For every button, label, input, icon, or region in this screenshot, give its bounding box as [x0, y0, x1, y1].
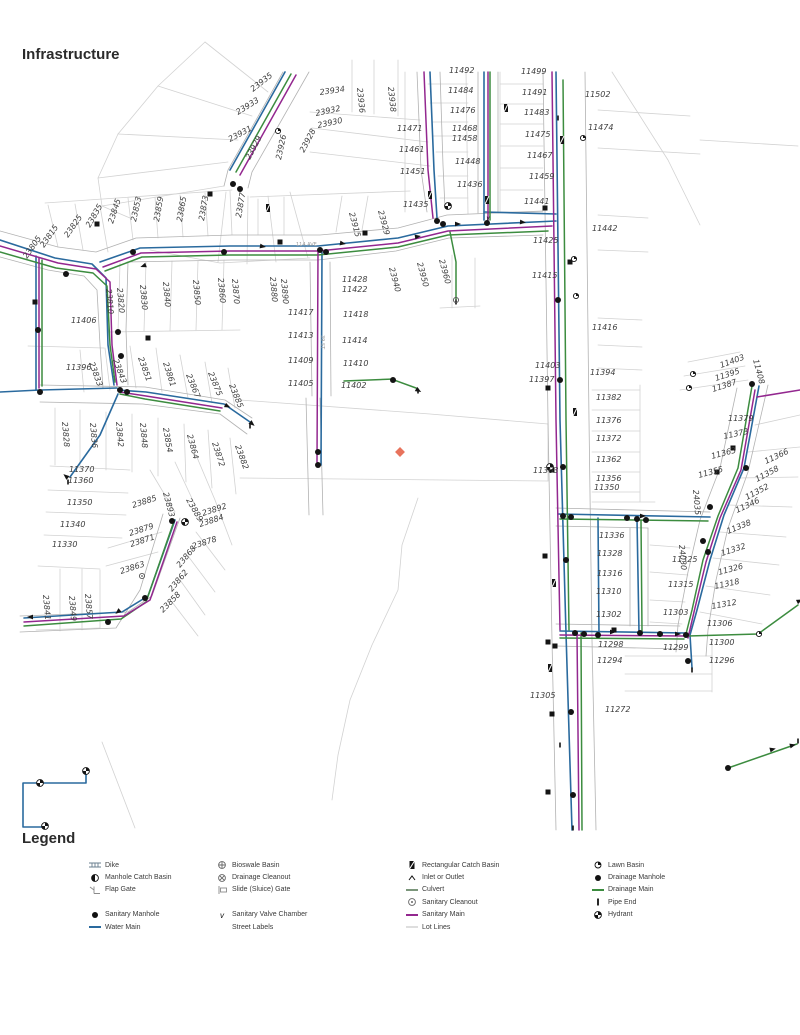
pipe-end-icon — [417, 389, 419, 394]
lot-line — [184, 424, 186, 482]
lawn-basin-icon — [591, 860, 605, 870]
manhole-icon — [37, 389, 43, 395]
lot-label: 23880 — [268, 276, 279, 302]
lot-label: 23842 — [114, 421, 125, 447]
lot-label: 11425 — [533, 236, 558, 245]
manhole-icon — [700, 538, 706, 544]
lot-label: 11418 — [343, 310, 368, 319]
catch-basin-icon — [546, 386, 551, 391]
lot-line — [598, 318, 642, 320]
road-edge-line — [556, 624, 680, 626]
lot-label: 11315 — [668, 580, 693, 589]
lot-label: 11302 — [596, 610, 621, 619]
catch-basin-icon — [543, 206, 548, 211]
lot-label: 23930 — [317, 116, 344, 130]
legend-item-label: Rectangular Catch Basin — [422, 862, 499, 869]
legend-item-lot-lines: Lot Lines — [405, 921, 591, 933]
manhole-icon — [221, 249, 227, 255]
manhole-icon — [705, 549, 711, 555]
lawn-basin-icon — [583, 135, 586, 138]
bioswale-basin-icon — [215, 860, 229, 870]
legend-item-sanitary-cleanout: Sanitary Cleanout — [405, 896, 591, 908]
water-main-icon — [88, 922, 102, 932]
manhole-icon — [440, 221, 446, 227]
culvert-icon — [405, 885, 419, 895]
lot-line — [650, 572, 688, 575]
cleanout-icon — [141, 575, 143, 577]
lot-label: 23840 — [161, 281, 172, 307]
lot-label: 11360 — [68, 476, 93, 485]
legend-item-label: Sanitary Valve Chamber — [232, 911, 307, 918]
catch-basin-icon — [546, 640, 551, 645]
drainage-main-line — [394, 380, 416, 388]
hydrant-icon — [591, 910, 605, 920]
manhole-icon — [637, 630, 643, 636]
lot-label: 23885 — [227, 382, 245, 409]
legend-item-label: Culvert — [422, 886, 444, 893]
legend-panel: Legend DikeManhole Catch BasinFlap GateS… — [22, 830, 782, 933]
lot-line — [748, 447, 800, 452]
legend-item-label: Lawn Basin — [608, 862, 644, 869]
lot-label: 11417 — [288, 308, 314, 317]
lot-label: 23868 — [175, 544, 198, 569]
lot-label: 23853 — [129, 196, 143, 223]
manhole-icon — [624, 515, 630, 521]
manhole-icon — [117, 387, 123, 393]
lot-label: 11326 — [717, 562, 744, 577]
catch-basin-icon — [363, 231, 368, 236]
manhole-icon — [657, 631, 663, 637]
road-edge-line — [556, 508, 710, 512]
manhole-icon — [315, 449, 321, 455]
manhole-icon — [581, 631, 587, 637]
legend-item-slide-sluice-gate: Slide (Sluice) Gate — [215, 884, 405, 896]
manhole-icon — [707, 504, 713, 510]
legend-item-drainage-main: Drainage Main — [591, 884, 751, 896]
lot-label: 11363 — [533, 466, 558, 475]
manhole-icon — [130, 249, 136, 255]
lot-label: 23848 — [138, 422, 149, 448]
water-main-line — [321, 252, 322, 465]
lot-label: 11366 — [763, 447, 790, 466]
lot-label: 11355 — [697, 465, 724, 480]
legend-item-label: Manhole Catch Basin — [105, 874, 172, 881]
lot-label: 11376 — [596, 416, 621, 425]
manhole-icon — [230, 181, 236, 187]
water-main-line — [560, 631, 686, 633]
lot-line — [240, 400, 548, 424]
lot-line — [240, 478, 548, 481]
lot-line — [247, 196, 248, 264]
lot-label: 23864 — [185, 433, 200, 460]
lot-label: 11475 — [525, 130, 550, 139]
selected-location-marker — [395, 447, 405, 457]
drainage-main-icon — [591, 885, 605, 895]
pipe-end-icon — [591, 897, 605, 907]
lot-label: 11410 — [343, 359, 368, 368]
legend-item-drainage-cleanout: Drainage Cleanout — [215, 871, 405, 883]
lot-label: 11468 — [452, 124, 477, 133]
lot-label: 11394 — [590, 368, 615, 377]
lot-label: 11405 — [288, 379, 313, 388]
catch-basin-icon — [550, 712, 555, 717]
legend-item-sanitary-manhole: Sanitary Manhole — [88, 909, 215, 921]
catch-basin-icon — [33, 300, 38, 305]
manhole-icon — [595, 632, 601, 638]
lot-label: 23950 — [415, 261, 430, 288]
lot-label: 23828 — [60, 421, 71, 447]
legend-item-street-labels: Street Labels — [215, 921, 405, 933]
none-icon — [215, 922, 229, 932]
manhole-icon — [557, 377, 563, 383]
legend-item-label: Drainage Manhole — [608, 874, 665, 881]
legend-item-label: Water Main — [105, 924, 141, 931]
lot-label: 11358 — [754, 464, 781, 484]
lot-line — [290, 192, 308, 258]
lot-label: 23934 — [319, 85, 345, 97]
road-edge-line — [556, 526, 648, 528]
lot-line — [98, 162, 228, 178]
lot-line — [102, 742, 135, 828]
manhole-icon — [115, 329, 121, 335]
lot-label: 23926 — [274, 134, 288, 161]
manhole-icon — [434, 218, 440, 224]
lot-label: 11272 — [605, 705, 630, 714]
lot-label: 11379 — [728, 414, 753, 423]
water-main-line — [637, 519, 639, 632]
manhole-icon — [142, 595, 148, 601]
lot-label: 11483 — [524, 108, 549, 117]
lot-label: 23865 — [175, 196, 188, 223]
lot-label: 23845 — [106, 198, 122, 225]
manhole-icon — [634, 516, 640, 522]
manhole-icon — [743, 465, 749, 471]
lot-label: 11362 — [596, 455, 621, 464]
lot-label: 23859 — [152, 196, 165, 223]
lot-line — [118, 134, 238, 140]
road-edge-line — [126, 262, 128, 385]
lot-label: 11402 — [341, 381, 366, 390]
manhole-icon — [124, 389, 130, 395]
lot-label: 23929 — [376, 209, 391, 236]
legend-item-label: Sanitary Manhole — [105, 911, 159, 918]
manhole-icon — [555, 297, 561, 303]
lot-label: 11428 — [342, 275, 367, 284]
legend-item-label: Street Labels — [232, 924, 273, 931]
catch-basin-icon — [543, 554, 548, 559]
road-edge-line — [127, 235, 543, 262]
manhole-icon — [35, 327, 41, 333]
lot-label: 11310 — [596, 587, 621, 596]
drainage-manhole-icon — [591, 873, 605, 883]
road-edge-line — [306, 398, 309, 515]
legend-item-label: Hydrant — [608, 911, 633, 918]
drainage-cleanout-icon — [215, 873, 229, 883]
lot-line — [108, 330, 240, 332]
legend-item-label: Drainage Cleanout — [232, 874, 290, 881]
manhole-icon — [568, 709, 574, 715]
lot-label: 11435 — [403, 200, 428, 209]
manhole-icon — [390, 377, 396, 383]
lot-line — [310, 152, 430, 166]
manhole-icon — [572, 630, 578, 636]
legend-item-label: Drainage Main — [608, 886, 654, 893]
lot-label: 11350 — [594, 483, 619, 492]
sanitary-cleanout-icon — [405, 897, 419, 907]
lot-label: 11451 — [400, 167, 425, 176]
water-main-line — [558, 514, 710, 517]
street-label: 114 AVE — [296, 242, 317, 248]
legend-item-label: Lot Lines — [422, 924, 450, 931]
lot-label: 11499 — [521, 67, 546, 76]
lot-label: 11461 — [399, 145, 424, 154]
legend-item-dike: Dike — [88, 859, 215, 871]
lot-label: 11370 — [69, 465, 94, 474]
lot-label: 23870 — [230, 278, 241, 304]
catch-basin-icon — [208, 192, 213, 197]
lot-label: 23882 — [233, 444, 250, 471]
legend-item-sanitary-main: Sanitary Main — [405, 909, 591, 921]
lot-label: 23867 — [184, 372, 202, 400]
lot-label: 11363 — [710, 446, 737, 461]
sanitary-main-line — [317, 252, 318, 462]
lot-line — [598, 345, 642, 347]
legend-item-pipe-end: Pipe End — [591, 896, 751, 908]
lot-line — [196, 455, 215, 500]
manhole-catch-basin-icon — [88, 873, 102, 883]
cleanout-icon — [455, 299, 457, 301]
lot-label: 11296 — [709, 656, 734, 665]
lot-label: 11340 — [60, 520, 85, 529]
legend-item-rectangular-catch-basin: Rectangular Catch Basin — [405, 859, 591, 871]
lot-label: 23933 — [234, 96, 260, 117]
lot-label: 11332 — [720, 541, 747, 557]
legend-item-label: Flap Gate — [105, 886, 136, 893]
lot-label: 11459 — [529, 172, 554, 181]
pipe-end-icon — [557, 116, 559, 121]
lot-label: 23872 — [210, 441, 226, 468]
lot-label: 11328 — [597, 549, 622, 558]
slide-gate-icon — [215, 885, 229, 895]
lot-label: 11312 — [711, 598, 738, 611]
lot-label: 23851 — [136, 356, 153, 383]
lot-label: 11303 — [663, 608, 688, 617]
lot-label: 11298 — [598, 640, 623, 649]
lot-label: 23938 — [386, 86, 398, 112]
lot-label: 23825 — [62, 213, 84, 239]
manhole-icon — [563, 557, 569, 563]
lot-line — [332, 498, 418, 800]
drainage-main-line — [581, 633, 582, 830]
drainage-main-line — [560, 519, 708, 521]
lot-line — [598, 110, 690, 116]
lot-label: 23820 — [115, 287, 126, 313]
drainage-main-line — [641, 521, 642, 631]
lot-label: 23849 — [67, 595, 78, 621]
manhole-icon — [63, 271, 69, 277]
road-edge-line — [585, 72, 596, 830]
lot-label: 11492 — [449, 66, 474, 75]
sanitary-main-line — [560, 635, 686, 636]
lot-label: 23857 — [83, 593, 94, 620]
sanitary-main-icon — [405, 910, 419, 920]
rect-catch-basin-icon — [405, 860, 419, 870]
lot-label: 11330 — [52, 540, 77, 549]
legend-item-label: Pipe End — [608, 899, 636, 906]
lot-line — [250, 191, 410, 197]
lot-label: 23830 — [138, 284, 149, 310]
lot-label: 11471 — [397, 124, 422, 133]
legend-column-1: DikeManhole Catch BasinFlap GateSanitary… — [88, 859, 215, 933]
lot-label: 11300 — [709, 638, 734, 647]
lot-label: 11372 — [596, 434, 621, 443]
lot-label: 11316 — [597, 569, 622, 578]
sanitary-main-line — [577, 633, 579, 830]
manhole-icon — [725, 765, 731, 771]
lot-label: 11403 — [535, 361, 560, 370]
lot-line — [713, 558, 779, 565]
legend-item-inlet-or-outlet: Inlet or Outlet — [405, 871, 591, 883]
drainage-main-line — [560, 638, 684, 639]
dike-icon — [88, 860, 102, 870]
lot-label: 23873 — [197, 195, 210, 222]
lot-label: 11305 — [530, 691, 555, 700]
lot-line — [156, 348, 162, 392]
lot-line — [650, 622, 682, 624]
lot-label: 23810 — [104, 288, 115, 314]
lot-label: 11356 — [596, 474, 621, 483]
lot-label: 11484 — [448, 86, 473, 95]
lot-label: 11442 — [592, 224, 617, 233]
lot-line — [172, 602, 198, 636]
lot-label: 23936 — [355, 87, 367, 113]
lot-line — [598, 215, 648, 218]
manhole-icon — [560, 464, 566, 470]
svg-text:v: v — [220, 911, 225, 920]
lawn-basin-icon — [689, 385, 692, 388]
pipe-end-icon — [249, 424, 251, 429]
catch-basin-icon — [146, 336, 151, 341]
road-edge-line — [310, 262, 312, 396]
lot-label: 11406 — [71, 316, 96, 325]
lot-line — [188, 556, 215, 592]
legend-item-label: Inlet or Outlet — [422, 874, 464, 881]
lot-label: 11325 — [672, 555, 697, 564]
lawn-basin-icon — [574, 256, 577, 259]
inlet-outlet-icon — [405, 873, 419, 883]
lot-label: 11448 — [455, 157, 480, 166]
legend-item-label: Slide (Sluice) Gate — [232, 886, 290, 893]
lot-label: 11491 — [522, 88, 547, 97]
manhole-icon — [237, 186, 243, 192]
legend-item-drainage-manhole: Drainage Manhole — [591, 871, 751, 883]
pipe-end-icon — [797, 739, 799, 744]
catch-basin-icon — [553, 644, 558, 649]
catch-basin-icon — [546, 790, 551, 795]
lot-line — [38, 566, 100, 569]
manhole-icon — [323, 249, 329, 255]
lot-label: 23836 — [88, 422, 99, 448]
lot-label: 11299 — [663, 643, 688, 652]
legend-item-bioswale-basin: Bioswale Basin — [215, 859, 405, 871]
lot-label: 11294 — [597, 656, 622, 665]
lot-lines-icon — [405, 922, 419, 932]
lot-label: 23815 — [38, 223, 60, 249]
lot-label: 11382 — [596, 393, 621, 402]
lot-label: 11413 — [288, 331, 313, 340]
legend-item-lawn-basin: Lawn Basin — [591, 859, 751, 871]
lot-label: 23850 — [191, 279, 202, 305]
lot-line — [100, 206, 108, 252]
drainage-main-line — [450, 232, 456, 300]
lot-label: 11502 — [585, 90, 610, 99]
street-label: 39 ST — [319, 335, 325, 350]
legend-item-hydrant: Hydrant — [591, 909, 751, 921]
legend-item-label: Sanitary Cleanout — [422, 899, 478, 906]
lot-label: 11458 — [452, 134, 477, 143]
pipe-end-icon — [691, 668, 693, 673]
lawn-basin-icon — [278, 128, 281, 131]
legend-column-4: Lawn BasinDrainage ManholeDrainage MainP… — [591, 859, 751, 933]
lot-label: 23890 — [279, 278, 290, 304]
manhole-icon — [315, 462, 321, 468]
legend-item-sanitary-valve-chamber: vSanitary Valve Chamber — [215, 909, 405, 921]
lot-label: 23860 — [216, 277, 227, 303]
road-edge-line — [330, 262, 331, 396]
legend-columns: DikeManhole Catch BasinFlap GateSanitary… — [88, 859, 782, 933]
legend-column-3: Rectangular Catch BasinInlet or OutletCu… — [405, 859, 591, 933]
water-main-line — [0, 388, 117, 392]
lot-line — [130, 346, 136, 388]
lot-label: 11408 — [751, 358, 766, 385]
sanitary-manhole-icon — [88, 910, 102, 920]
inlet-outlet-icon — [796, 597, 800, 604]
manhole-icon — [169, 518, 175, 524]
lot-line — [48, 490, 128, 493]
lot-label: 11441 — [524, 197, 549, 206]
lot-label: 11397 — [529, 375, 555, 384]
lot-line — [598, 148, 700, 154]
manhole-icon — [685, 658, 691, 664]
manhole-icon — [683, 632, 689, 638]
legend-title: Legend — [22, 830, 782, 847]
lot-label: 23928 — [298, 127, 318, 154]
legend-item-culvert: Culvert — [405, 884, 591, 896]
road-edge-line — [440, 72, 445, 208]
lot-line — [700, 140, 798, 146]
lot-line — [362, 196, 368, 230]
lot-line — [230, 191, 232, 235]
manhole-icon — [643, 517, 649, 523]
lot-label: 11476 — [450, 106, 475, 115]
lot-label: 23960 — [437, 258, 452, 285]
sanitary-main-line — [0, 246, 117, 385]
lot-line — [44, 535, 122, 538]
manhole-icon — [749, 381, 755, 387]
pipe-end-icon — [559, 743, 561, 748]
lot-label: 11474 — [588, 123, 613, 132]
manhole-icon — [105, 619, 111, 625]
lot-line — [180, 580, 205, 615]
legend-item-manhole-catch-basin: Manhole Catch Basin — [88, 871, 215, 883]
lot-label: 11373 — [723, 427, 750, 441]
lawn-basin-icon — [693, 371, 696, 374]
lot-label: 11422 — [342, 285, 367, 294]
sanitary-main-line — [120, 392, 222, 408]
lot-label: 11306 — [707, 619, 732, 628]
sanitary-main-line — [757, 390, 800, 397]
lot-label: 11409 — [288, 356, 313, 365]
